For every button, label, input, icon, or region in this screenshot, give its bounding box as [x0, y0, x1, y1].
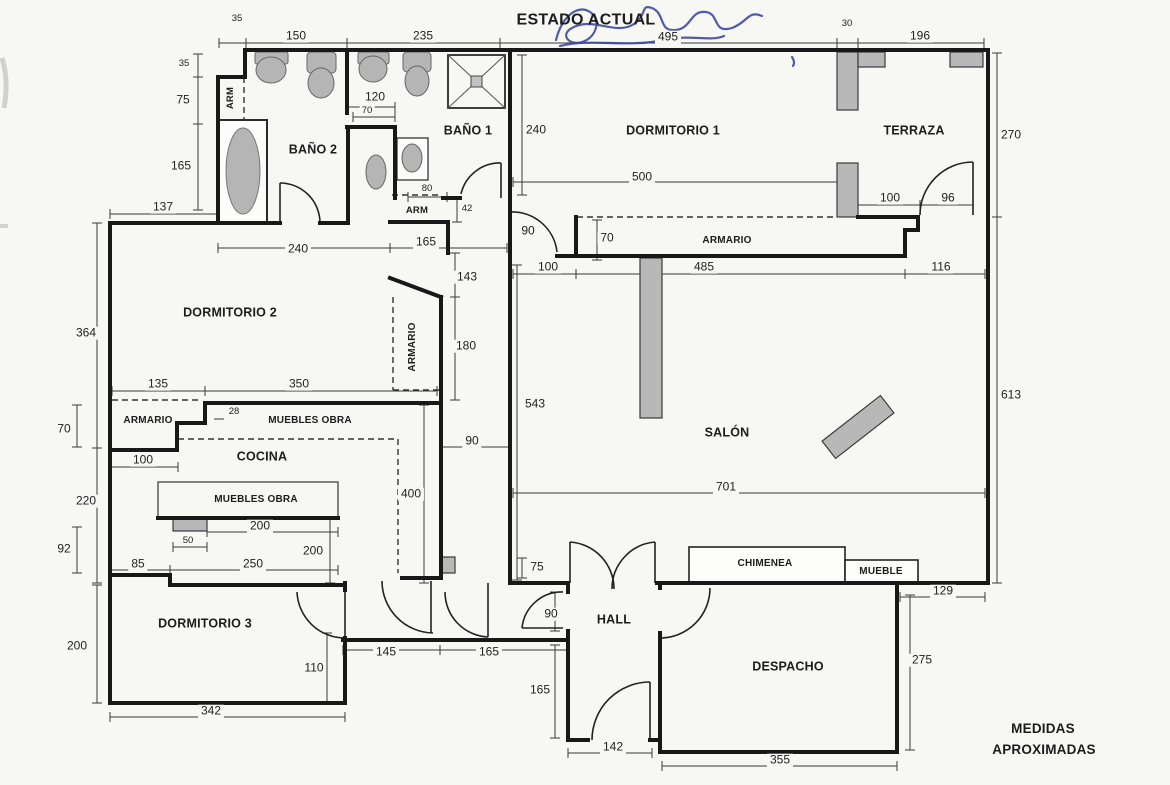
dim-dorm3-165: 165: [476, 646, 502, 659]
label-muebles-obra-1: MUEBLES OBRA: [268, 416, 352, 427]
room-label-terraza: TERRAZA: [883, 124, 944, 137]
room-label-salon: SALÓN: [705, 426, 750, 439]
scan-artifacts: [0, 58, 8, 226]
dim-pasillo-143: 143: [454, 271, 480, 284]
pillar: [858, 52, 885, 67]
dim-top-235: 235: [410, 30, 436, 43]
dim-bano2-120: 120: [362, 91, 388, 104]
label-muebles-obra-2: MUEBLES OBRA: [214, 495, 298, 506]
label-arm-bano1: ARM: [404, 206, 430, 216]
dim-left-75: 75: [173, 94, 192, 107]
toilet-bowl: [308, 68, 334, 98]
dim-left-100: 100: [130, 454, 156, 467]
dim-dorm1-70: 70: [597, 232, 616, 245]
floor-plan-scan: ESTADO ACTUAL MEDIDAS APROXIMADAS BAÑO 2…: [0, 0, 1170, 785]
dim-despacho-275: 275: [909, 654, 935, 667]
dim-terraza-100: 100: [877, 192, 903, 205]
sink-bowl: [256, 57, 286, 83]
sink-bowl: [359, 56, 387, 82]
label-arm-bano2: ARM: [226, 85, 236, 111]
dim-muebles-200: 200: [247, 520, 273, 533]
label-chimenea: CHIMENEA: [738, 559, 793, 570]
dim-top-150: 150: [283, 30, 309, 43]
dim-hall-90: 90: [541, 608, 560, 621]
label-armario-dorm2: ARMARIO: [123, 416, 172, 427]
dim-dorm1-240: 240: [523, 124, 549, 137]
room-label-dormitorio3: DORMITORIO 3: [158, 617, 252, 630]
dim-dorm2-350: 350: [286, 378, 312, 391]
room-label-despacho: DESPACHO: [752, 660, 824, 673]
dim-despacho-355: 355: [767, 754, 793, 767]
dim-despacho-129: 129: [930, 585, 956, 598]
dim-bottom-342: 342: [198, 705, 224, 718]
pillar: [950, 52, 983, 67]
note-line1: MEDIDAS: [1011, 722, 1075, 736]
room-label-cocina: COCINA: [237, 450, 288, 463]
dim-left-137: 137: [150, 201, 176, 214]
dim-dorm3-145: 145: [373, 646, 399, 659]
dim-left-364: 364: [73, 327, 99, 340]
dim-arm-80: 80: [420, 184, 435, 194]
pillar: [837, 52, 858, 110]
room-label-dormitorio2: DORMITORIO 2: [183, 306, 277, 319]
dim-top-35: 35: [230, 14, 245, 24]
toilet-bowl: [405, 66, 429, 96]
floor-plan-drawing: [0, 0, 1170, 785]
dim-left-70: 70: [54, 423, 73, 436]
dim-muebles-250: 250: [240, 558, 266, 571]
dim-hall-165: 165: [527, 684, 553, 697]
shower-drain: [471, 76, 482, 87]
room-label-bano1: BAÑO 1: [444, 124, 492, 137]
dim-pasillo-180: 180: [453, 340, 479, 353]
dim-right-270: 270: [998, 129, 1024, 142]
dim-dorm3-110: 110: [301, 662, 326, 675]
dim-top-196: 196: [907, 30, 933, 43]
dim-dorm2-28: 28: [227, 407, 242, 417]
dim-terraza-96: 96: [938, 192, 957, 205]
dim-dorm1-90: 90: [518, 225, 537, 238]
ink-dot: [792, 57, 794, 66]
label-armario-pasillo: ARMARIO: [408, 322, 419, 371]
dim-hall-142: 142: [600, 741, 626, 754]
dim-bano2-240: 240: [285, 243, 311, 256]
dim-salon-543: 543: [522, 398, 548, 411]
sink-bowl: [402, 144, 422, 172]
dim-left-220: 220: [73, 495, 99, 508]
dim-dorm2-135: 135: [145, 378, 171, 391]
dim-dorm1-116: 116: [928, 261, 953, 274]
dim-dorm1-485: 485: [691, 261, 717, 274]
bathtub-basin: [226, 128, 260, 214]
dim-salon-701: 701: [713, 481, 739, 494]
dim-left-165: 165: [168, 160, 194, 173]
pillar: [837, 163, 858, 217]
dim-left-85: 85: [128, 558, 147, 571]
dim-left-92: 92: [54, 543, 73, 556]
room-label-bano2: BAÑO 2: [289, 143, 337, 156]
dim-top-495: 495: [655, 31, 681, 44]
diagonal-pillar: [822, 396, 894, 459]
dim-left-35: 35: [177, 59, 192, 69]
label-mueble: MUEBLE: [859, 567, 902, 578]
dim-dorm1-500: 500: [629, 171, 655, 184]
dim-cocina-400: 400: [398, 488, 424, 501]
dim-arm-42: 42: [460, 204, 475, 214]
pillar: [442, 557, 455, 573]
dim-bano2-70: 70: [360, 106, 375, 116]
room-label-dormitorio1: DORMITORIO 1: [626, 124, 720, 137]
note-line2: APROXIMADAS: [992, 743, 1095, 757]
plan-title: ESTADO ACTUAL: [516, 13, 655, 30]
room-label-hall: HALL: [597, 613, 631, 626]
dim-pasillo-90: 90: [462, 435, 481, 448]
dim-muebles-50: 50: [181, 536, 196, 546]
label-armario-dorm1: ARMARIO: [702, 236, 751, 247]
dim-bano2-165: 165: [413, 236, 439, 249]
column: [640, 258, 662, 418]
dim-right-613: 613: [998, 389, 1024, 402]
dim-top-30: 30: [840, 19, 855, 29]
toilet-bowl: [366, 155, 386, 189]
dim-hall-75: 75: [527, 561, 546, 574]
dim-muebles-200v: 200: [300, 545, 326, 558]
dim-dorm1-100: 100: [535, 261, 561, 274]
dim-left-200: 200: [64, 640, 90, 653]
